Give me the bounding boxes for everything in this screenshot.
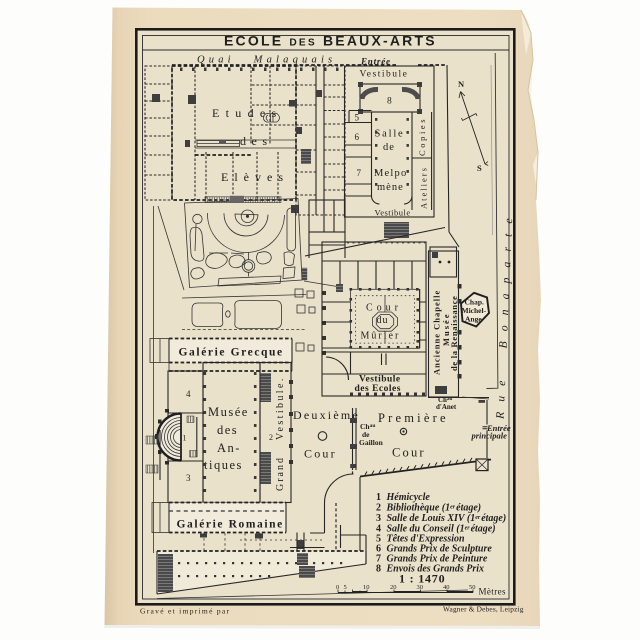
svg-text:Cour: Cour (392, 446, 426, 460)
svg-text:des: des (240, 134, 273, 148)
svg-text:ECOLE DES BEAUX-ARTS: ECOLE DES BEAUX-ARTS (224, 33, 437, 49)
svg-text:50: 50 (469, 584, 476, 591)
svg-text:Galérie Grecque: Galérie Grecque (179, 347, 284, 359)
svg-text:10: 10 (363, 584, 370, 591)
svg-text:Copies: Copies (417, 117, 427, 156)
svg-text:Etudes: Etudes (212, 106, 282, 120)
svg-text:Ancienne Chapelle: Ancienne Chapelle (432, 290, 442, 375)
svg-text:principale: principale (471, 431, 508, 441)
svg-text:3: 3 (186, 473, 191, 483)
svg-text:6: 6 (355, 132, 360, 142)
svg-text:N: N (458, 79, 465, 89)
svg-text:Galérie Romaine: Galérie Romaine (177, 519, 284, 531)
svg-text:des: des (217, 423, 238, 437)
svg-text:Mètres: Mètres (479, 587, 506, 597)
svg-text:Grand: Grand (275, 456, 286, 491)
svg-text:Première: Première (378, 411, 449, 425)
svg-text:7: 7 (357, 168, 362, 178)
svg-text:5: 5 (355, 113, 360, 123)
svg-text:Elèves: Elèves (221, 170, 289, 184)
svg-text:5: 5 (344, 584, 347, 591)
svg-text:1: 1 (183, 434, 187, 443)
svg-text:40: 40 (443, 584, 450, 591)
svg-text:tiques: tiques (204, 458, 243, 472)
svg-text:Salle: Salle (375, 129, 405, 140)
svg-text:An-: An- (217, 441, 241, 455)
svg-text:Mûrier: Mûrier (361, 331, 401, 342)
svg-text:4: 4 (186, 389, 191, 399)
svg-text:de: de (383, 142, 395, 153)
svg-text:Quai Malaquais: Quai Malaquais (197, 55, 336, 66)
svg-text:S: S (477, 163, 482, 173)
svg-text:8: 8 (387, 97, 392, 107)
svg-text:Vestibule: Vestibule (375, 208, 411, 218)
svg-text:de la Renaissance: de la Renaissance (449, 295, 459, 371)
svg-text:30: 30 (417, 584, 424, 591)
svg-text:2 Bibliothèque (1erétage): 2 Bibliothèque (1erétage) (376, 503, 481, 514)
svg-text:Gravé et imprimé par: Gravé et imprimé par (140, 607, 230, 616)
svg-text:Vestibule.: Vestibule. (275, 376, 286, 440)
svg-text:Vestibule: Vestibule (359, 375, 401, 385)
svg-text:des Ecoles: des Ecoles (355, 384, 401, 394)
svg-text:mène: mène (377, 182, 404, 193)
svg-text:Gaillon: Gaillon (359, 438, 384, 447)
svg-text:Ateliers: Ateliers (419, 166, 429, 209)
svg-text:Cour: Cour (304, 447, 337, 461)
svg-text:Vestibule: Vestibule (360, 70, 409, 80)
svg-text:d'Anet: d'Anet (436, 403, 457, 411)
svg-text:Ange: Ange (465, 315, 482, 324)
svg-text:Wagner & Debes, Leipzig: Wagner & Debes, Leipzig (443, 605, 524, 614)
svg-text:0: 0 (336, 584, 339, 591)
svg-text:Musée: Musée (208, 405, 249, 419)
svg-text:2: 2 (269, 433, 273, 442)
svg-text:20: 20 (390, 584, 397, 591)
svg-text:3 Salle de Louis XIV (1erétage: 3 Salle de Louis XIV (1erétage) (376, 513, 506, 524)
svg-text:Deuxième: Deuxième (293, 408, 360, 422)
svg-text:Melpo: Melpo (374, 168, 407, 179)
